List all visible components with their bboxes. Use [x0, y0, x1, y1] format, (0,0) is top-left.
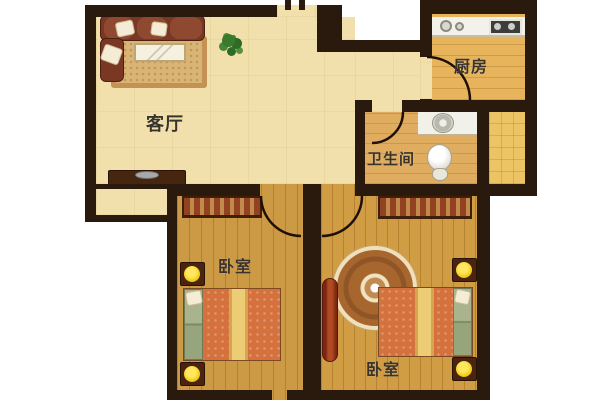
- lamp-icon: [456, 361, 472, 377]
- wall-bottom-right-segment: [287, 390, 477, 400]
- tv-dish: [135, 171, 159, 179]
- kitchen-sink-bowl-large: [440, 20, 452, 32]
- nightstand: [180, 262, 205, 286]
- toilet-tank: [427, 144, 452, 171]
- wall-bedrooms-top-right: [363, 184, 537, 196]
- bed-runner-stripe: [415, 288, 434, 356]
- coffee-table: [134, 43, 186, 62]
- bed-pillow: [454, 289, 472, 306]
- wall-right-outer-upper: [525, 0, 537, 196]
- wardrobe: [182, 196, 262, 218]
- lamp-icon: [184, 266, 200, 282]
- wardrobe: [378, 196, 472, 219]
- bedroom-left-label: 卧室: [218, 253, 252, 277]
- stove-burner: [494, 23, 501, 30]
- bathroom-label: 卫生间: [367, 148, 415, 169]
- wall-bathroom-left: [355, 100, 365, 196]
- wall-bay-bottom: [85, 215, 177, 222]
- nightstand: [452, 258, 477, 282]
- stove-burner: [508, 23, 515, 30]
- entry-door-stub-right: [299, 0, 305, 10]
- lamp-icon: [184, 366, 200, 382]
- bed-pillow: [185, 290, 203, 307]
- entry-door-gap-floor: [277, 5, 317, 17]
- wall-entry-horizontal: [342, 40, 432, 52]
- nightstand: [452, 357, 477, 381]
- bay-window-line: [90, 184, 167, 189]
- toilet-bowl: [432, 168, 448, 181]
- throw-pillow: [150, 21, 168, 37]
- sofa-cushion: [170, 17, 202, 39]
- bed-runner-stripe: [229, 289, 248, 360]
- bedroom-right-label: 卧室: [366, 356, 400, 380]
- bed-left: [183, 288, 281, 361]
- nightstand: [180, 362, 205, 386]
- entry-door-stub-left: [285, 0, 291, 10]
- lamp-icon: [456, 262, 472, 278]
- wall-bottom-left-segment: [177, 390, 272, 400]
- living-room-label: 客厅: [146, 110, 184, 136]
- wall-left-outer: [85, 5, 96, 222]
- floor-plan: 客厅 厨房 卫生间 卧室 卧室: [0, 0, 600, 400]
- utility-shaft-floor: [489, 112, 525, 184]
- kitchen-sink-bowl-small: [455, 22, 464, 31]
- dresser: [322, 278, 338, 362]
- kitchen-label: 厨房: [454, 53, 488, 77]
- wash-basin: [432, 113, 454, 133]
- plant-icon: [222, 34, 235, 47]
- wall-kitchen-left-upper: [420, 14, 432, 57]
- wall-bedrooms-top-left: [167, 184, 260, 196]
- wall-mid-horizontal-right: [402, 100, 537, 112]
- bed-right: [378, 287, 473, 357]
- wall-kitchen-top: [420, 0, 537, 14]
- kitchen-door-gap-floor: [420, 57, 432, 99]
- wall-bedroom-divider: [303, 184, 321, 400]
- wall-bedroom-left-side: [167, 184, 177, 400]
- wall-entry-corner: [317, 5, 342, 52]
- wall-top-living: [85, 5, 277, 17]
- wall-bedroom-right-side: [477, 196, 490, 400]
